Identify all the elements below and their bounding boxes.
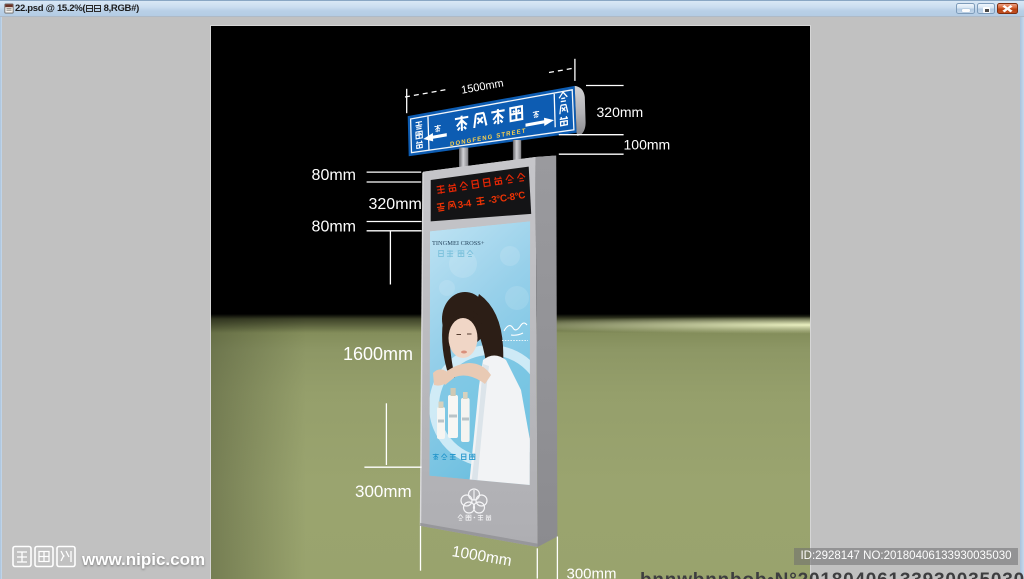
svg-text:TINGMEI CROSS+: TINGMEI CROSS+ [432, 240, 485, 247]
svg-text:300mm: 300mm [567, 566, 617, 579]
svg-text:320mm: 320mm [369, 196, 422, 213]
svg-text:1000mm: 1000mm [451, 543, 513, 570]
svg-text:1500mm: 1500mm [460, 77, 504, 96]
svg-text:80mm: 80mm [312, 167, 356, 184]
svg-text:80mm: 80mm [312, 219, 356, 236]
svg-text:320mm: 320mm [597, 104, 644, 120]
svg-text:3-4: 3-4 [457, 198, 473, 211]
svg-text:300mm: 300mm [355, 482, 412, 501]
svg-text:1600mm: 1600mm [343, 344, 413, 364]
svg-text:100mm: 100mm [624, 137, 671, 153]
